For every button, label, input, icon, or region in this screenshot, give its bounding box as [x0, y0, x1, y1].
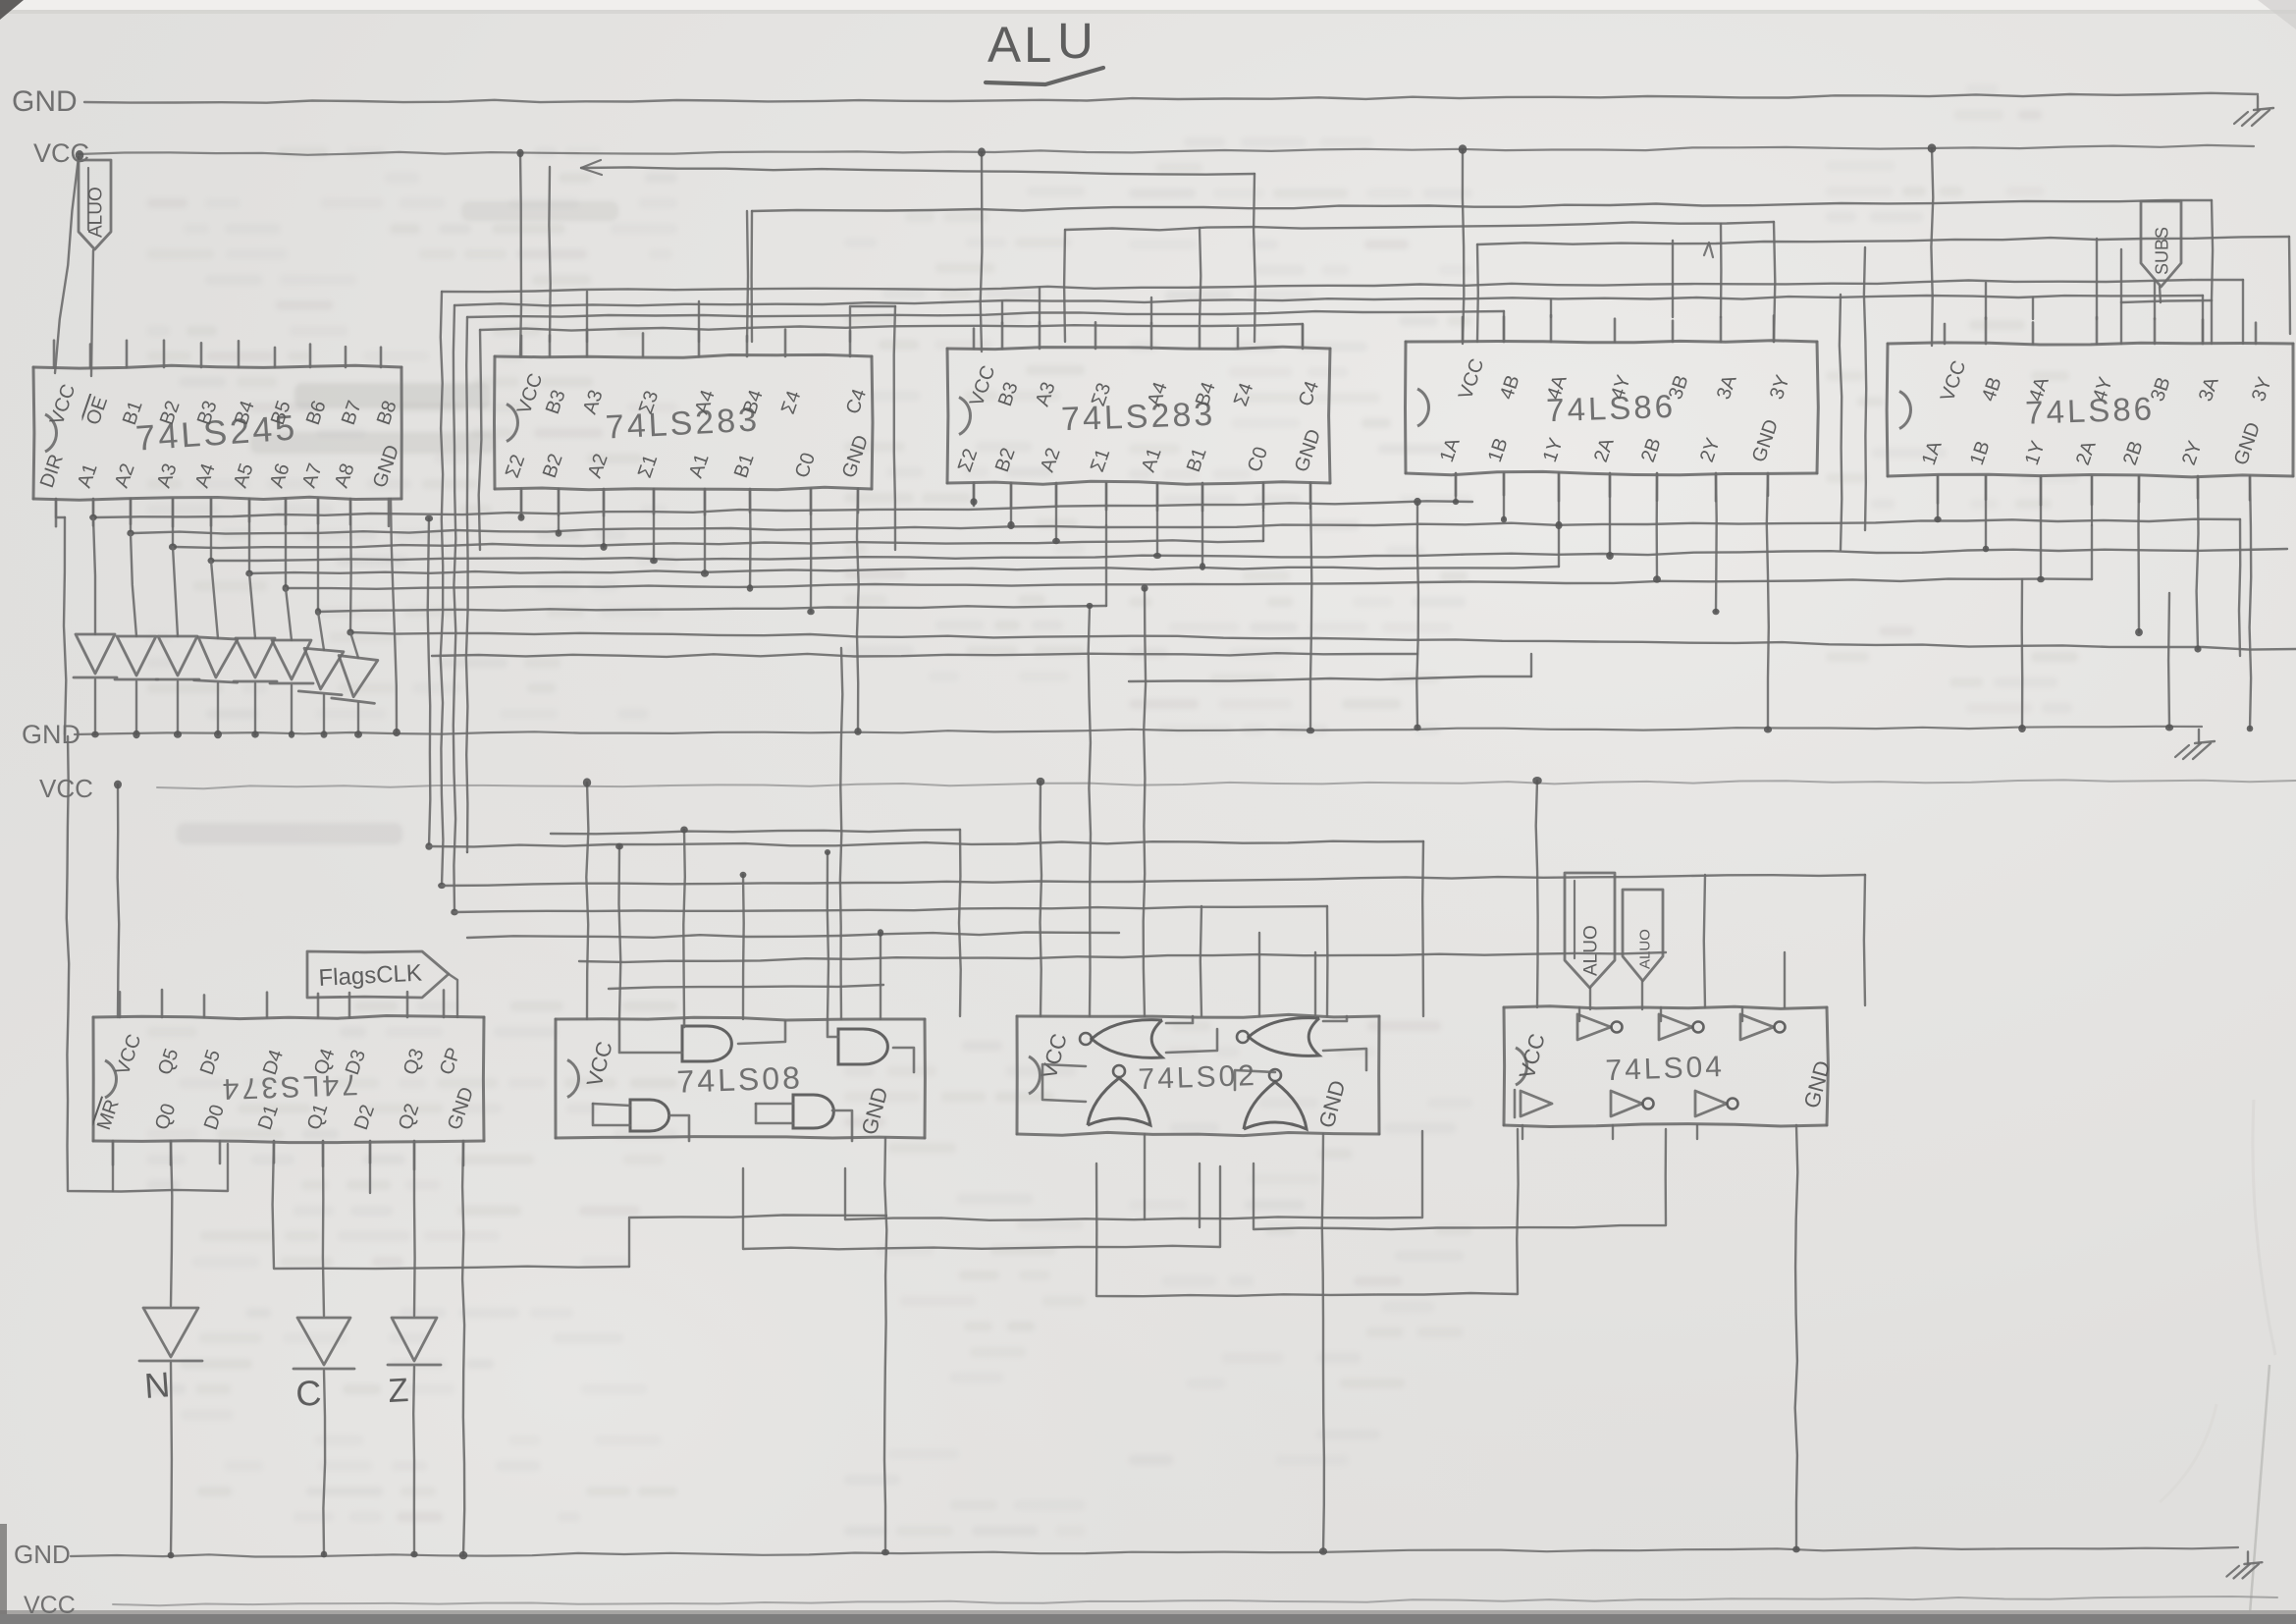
svg-text:GND: GND — [14, 1540, 71, 1569]
svg-text:ALUO: ALUO — [1637, 929, 1654, 969]
svg-text:Z: Z — [387, 1372, 409, 1410]
svg-text:VCC: VCC — [24, 1592, 76, 1619]
svg-text:AL: AL — [988, 17, 1054, 73]
svg-text:GND: GND — [22, 720, 80, 749]
svg-text:GND: GND — [12, 85, 78, 118]
svg-text:74LS02: 74LS02 — [1138, 1059, 1258, 1096]
svg-text:74LS374: 74LS374 — [219, 1068, 358, 1106]
svg-text:ALUO: ALUO — [1581, 925, 1602, 976]
svg-text:U: U — [1057, 13, 1094, 69]
svg-text:ALUO: ALUO — [86, 187, 107, 238]
svg-text:74LS08: 74LS08 — [676, 1059, 804, 1099]
svg-text:VCC: VCC — [39, 774, 93, 803]
svg-text:SUBS: SUBS — [2153, 227, 2172, 275]
svg-text:C: C — [294, 1373, 322, 1414]
svg-text:74LS04: 74LS04 — [1605, 1051, 1726, 1087]
svg-text:N: N — [143, 1364, 172, 1406]
svg-text:FlagsCLK: FlagsCLK — [318, 960, 423, 992]
